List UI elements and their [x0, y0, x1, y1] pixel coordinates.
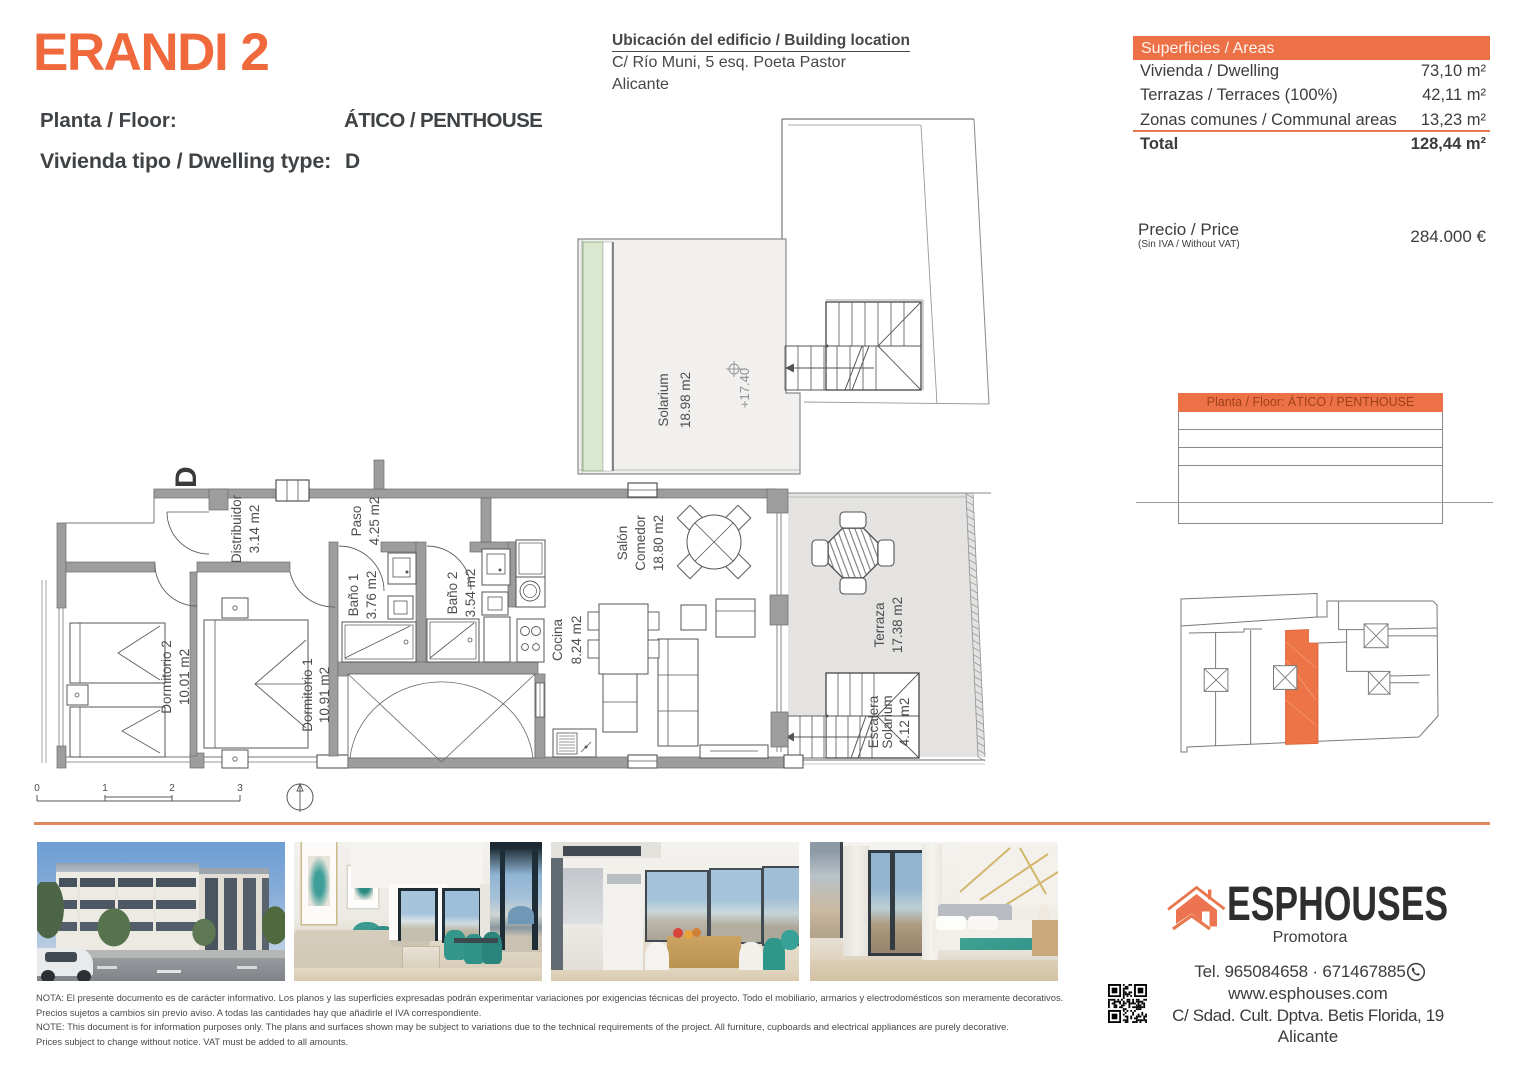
- svg-text:1: 1: [102, 783, 108, 794]
- svg-text:4.25 m2: 4.25 m2: [367, 497, 382, 546]
- svg-text:0: 0: [34, 783, 40, 794]
- svg-text:Salón: Salón: [615, 526, 630, 561]
- svg-text:Baño 1: Baño 1: [346, 574, 361, 617]
- svg-text:8.24 m2: 8.24 m2: [569, 616, 584, 665]
- svg-text:Escalera: Escalera: [866, 695, 881, 748]
- svg-text:Cocina: Cocina: [550, 619, 565, 662]
- svg-text:2: 2: [169, 783, 175, 794]
- svg-text:18.80 m2: 18.80 m2: [651, 515, 666, 571]
- svg-text:Comedor: Comedor: [633, 515, 648, 571]
- svg-text:10.01 m2: 10.01 m2: [177, 649, 192, 705]
- svg-text:+17.40: +17.40: [737, 368, 752, 408]
- svg-text:Paso: Paso: [349, 506, 364, 537]
- svg-text:Dormitorio 1: Dormitorio 1: [300, 658, 315, 732]
- svg-text:Terraza: Terraza: [872, 602, 887, 648]
- svg-text:Solarium: Solarium: [656, 373, 671, 426]
- svg-text:3: 3: [237, 783, 243, 794]
- svg-text:3.76 m2: 3.76 m2: [364, 571, 379, 620]
- svg-text:Baño 2: Baño 2: [445, 572, 460, 615]
- svg-text:Distribuidor: Distribuidor: [229, 494, 244, 563]
- svg-text:3.14 m2: 3.14 m2: [247, 505, 262, 554]
- svg-text:17.38 m2: 17.38 m2: [890, 597, 905, 653]
- svg-text:18.98 m2: 18.98 m2: [678, 372, 693, 428]
- svg-text:Solarium: Solarium: [880, 695, 895, 748]
- svg-text:3.54 m2: 3.54 m2: [463, 569, 478, 618]
- svg-text:4.12 m2: 4.12 m2: [897, 698, 912, 747]
- svg-text:10.91 m2: 10.91 m2: [317, 667, 332, 723]
- svg-text:Dormitorio 2: Dormitorio 2: [159, 640, 174, 714]
- svg-text:D: D: [170, 466, 203, 488]
